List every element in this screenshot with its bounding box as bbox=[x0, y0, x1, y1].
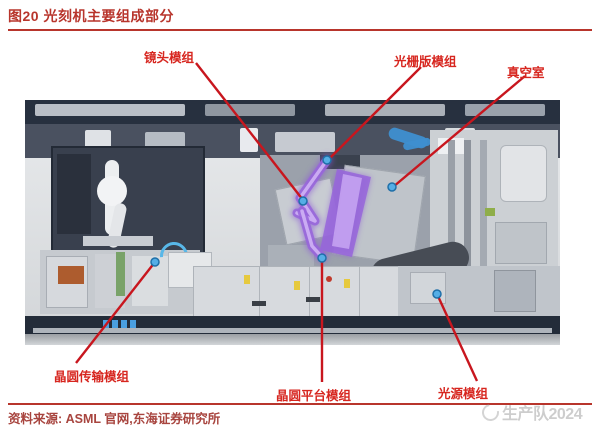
copper-module bbox=[58, 266, 84, 284]
source-note: 资料来源: ASML 官网,东海证券研究所 bbox=[8, 408, 220, 427]
floor-shadow bbox=[25, 334, 560, 345]
watermark-swirl-icon bbox=[479, 400, 503, 424]
label-lens-module: 镜头模组 bbox=[144, 47, 194, 66]
label-wafer-transfer-module: 晶圆传输模组 bbox=[54, 366, 129, 385]
optics-shelf bbox=[268, 245, 314, 267]
roof-panel bbox=[205, 104, 295, 116]
label-wafer-stage-module: 晶圆平台模组 bbox=[276, 385, 351, 404]
shelf-unit bbox=[275, 132, 335, 152]
circuit-board-strip bbox=[116, 252, 125, 296]
watermark-text: 生产队2024 bbox=[502, 400, 582, 424]
panel-seam bbox=[259, 267, 260, 317]
report-figure-page: { "figure": { "title": "图20 光刻机主要组成部分", … bbox=[0, 0, 600, 427]
green-fitting bbox=[485, 208, 495, 216]
projection-optics-box bbox=[332, 165, 426, 266]
lithography-machine-photo bbox=[25, 100, 560, 345]
panel-seam bbox=[309, 267, 310, 317]
watermark: 生产队2024 bbox=[482, 400, 582, 424]
wafer-handler-compartment bbox=[51, 146, 205, 255]
red-button bbox=[326, 276, 332, 282]
base-unit bbox=[410, 272, 446, 304]
robot-base bbox=[83, 236, 153, 246]
mirror-box bbox=[275, 178, 343, 246]
gas-tank bbox=[500, 145, 547, 202]
base-cabinet bbox=[193, 266, 400, 318]
roof-panel bbox=[35, 104, 185, 116]
label-reticle-module: 光栅版模组 bbox=[394, 51, 457, 70]
label-light-source-module: 光源模组 bbox=[438, 383, 488, 402]
shelf-unit bbox=[240, 128, 258, 152]
warning-label bbox=[294, 281, 300, 290]
machine-skid bbox=[33, 328, 552, 333]
figure-title: 图20 光刻机主要组成部分 bbox=[8, 6, 174, 26]
right-lower-unit bbox=[495, 222, 547, 264]
compartment-window bbox=[57, 154, 91, 234]
base-unit bbox=[494, 270, 536, 312]
warning-label bbox=[344, 279, 350, 288]
machine-roof-frame bbox=[25, 100, 560, 124]
warning-label bbox=[244, 275, 250, 284]
right-base-machinery bbox=[398, 266, 560, 316]
label-vacuum-chamber: 真空室 bbox=[507, 62, 545, 81]
panel-seam bbox=[359, 267, 360, 317]
left-cabinet-block bbox=[40, 250, 200, 314]
vent bbox=[306, 297, 320, 302]
title-divider bbox=[8, 29, 592, 31]
vent bbox=[252, 301, 266, 306]
robot-arm-joint bbox=[97, 176, 127, 206]
roof-panel bbox=[325, 104, 445, 116]
roof-panel bbox=[465, 104, 545, 116]
